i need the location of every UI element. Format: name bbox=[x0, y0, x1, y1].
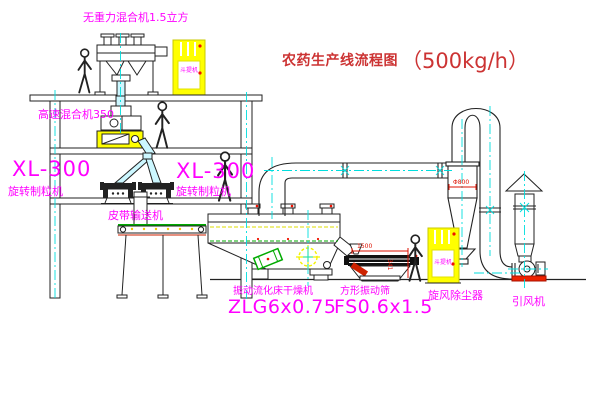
gravity-mixer-drawing bbox=[95, 34, 167, 96]
label-cyclone: 旋风除尘器 bbox=[428, 290, 483, 301]
bucket-elevator-2-drawing bbox=[425, 228, 461, 283]
label-granulator-left-name: 旋转制粒机 bbox=[8, 186, 63, 197]
dim-cyclone: Φ800 bbox=[453, 180, 469, 186]
label-belt-conveyor: 皮带输送机 bbox=[108, 210, 163, 221]
label-granulator-left-model: XL-300 bbox=[12, 159, 91, 180]
dryer-drawing bbox=[208, 204, 355, 280]
flow-diagram-canvas: 农药生产线流程图 （500kg/h） 无重力混合机1.5立方 高速混合机350 … bbox=[0, 0, 600, 403]
high-speed-mixer-drawing bbox=[97, 96, 155, 156]
title-text: 农药生产线流程图 bbox=[282, 50, 398, 70]
label-gravity-mixer: 无重力混合机1.5立方 bbox=[83, 12, 189, 23]
label-fan: 引风机 bbox=[512, 296, 545, 307]
label-dryer-model: ZLG6x0.75 bbox=[228, 298, 336, 317]
label-elevator-1-tag: 斗提机 bbox=[180, 68, 198, 74]
label-high-speed-mixer: 高速混合机350 bbox=[38, 109, 114, 120]
label-granulator-right-name: 旋转制粒机 bbox=[176, 186, 231, 197]
title-capacity: （500kg/h） bbox=[401, 45, 529, 75]
y-pipe-drawing bbox=[115, 153, 161, 183]
flange-cross-marks bbox=[341, 166, 529, 214]
belt-conveyor-drawing bbox=[117, 192, 207, 298]
dim-sieve-width: 1500 bbox=[357, 244, 372, 250]
diagram-title: 农药生产线流程图 （500kg/h） bbox=[282, 46, 529, 74]
label-granulator-right-model: XL-300 bbox=[176, 161, 255, 182]
label-elevator-2-tag: 斗提机 bbox=[434, 260, 452, 266]
label-sieve-model: FS0.6x1.5 bbox=[334, 298, 433, 317]
dim-sieve-side: 341 bbox=[386, 259, 392, 270]
